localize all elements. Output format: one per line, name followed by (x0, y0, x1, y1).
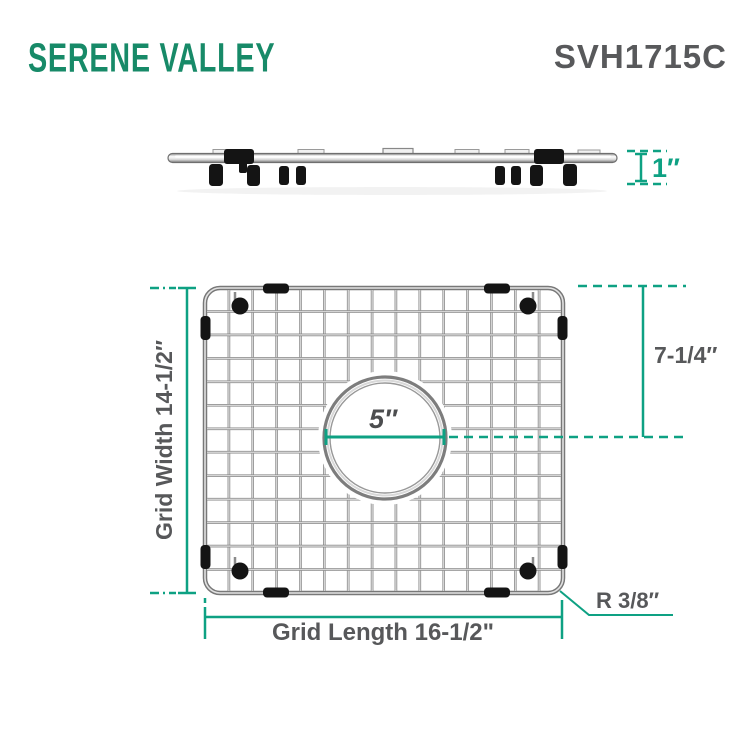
offset-dim-label: 7-1/4″ (654, 342, 717, 368)
radius-dim-label: R 3/8″ (596, 588, 660, 613)
side-view-shadow (177, 187, 607, 195)
grid-length-dimension: Grid Length 16-1/2" (205, 598, 562, 646)
front-view (201, 284, 568, 598)
diagram-svg: 1″ (0, 0, 755, 755)
grid-wire (207, 568, 561, 571)
height-dim-label: 1″ (652, 153, 680, 183)
height-dimension: 1″ (627, 151, 680, 184)
grid-wire (207, 334, 561, 337)
side-view-feet (209, 162, 577, 186)
grid-wire (207, 545, 561, 548)
product-dimension-diagram: SERENE VALLEY SVH1715C (0, 0, 755, 755)
hole-offset-dimension: 7-1/4″ (578, 286, 717, 437)
grid-wire (207, 357, 561, 360)
width-dim-label: Grid Width 14-1/2″ (151, 340, 177, 540)
grid-wire (207, 521, 561, 524)
grid-wire (207, 310, 561, 313)
corner-radius-dimension: R 3/8″ (560, 588, 673, 615)
length-dim-label: Grid Length 16-1/2" (272, 619, 494, 646)
diameter-dim-label: 5″ (369, 404, 398, 434)
grid-width-dimension: Grid Width 14-1/2″ (150, 288, 196, 593)
side-view (168, 149, 617, 196)
